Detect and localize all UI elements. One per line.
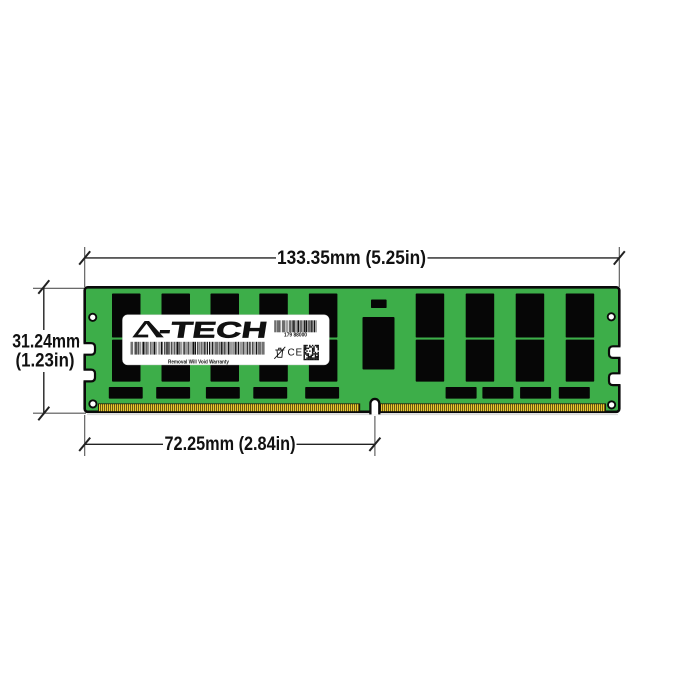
svg-text:-TECH: -TECH [157,317,269,342]
svg-text:Removal Will Void Warranty: Removal Will Void Warranty [168,359,229,365]
svg-text:(1.23in): (1.23in) [16,351,75,372]
svg-text:31.24mm: 31.24mm [12,332,80,353]
svg-text:133.35mm (5.25in): 133.35mm (5.25in) [277,248,426,269]
svg-text:179 88000: 179 88000 [284,332,307,338]
svg-text:CE: CE [288,347,304,358]
svg-text:72.25mm (2.84in): 72.25mm (2.84in) [165,434,296,455]
